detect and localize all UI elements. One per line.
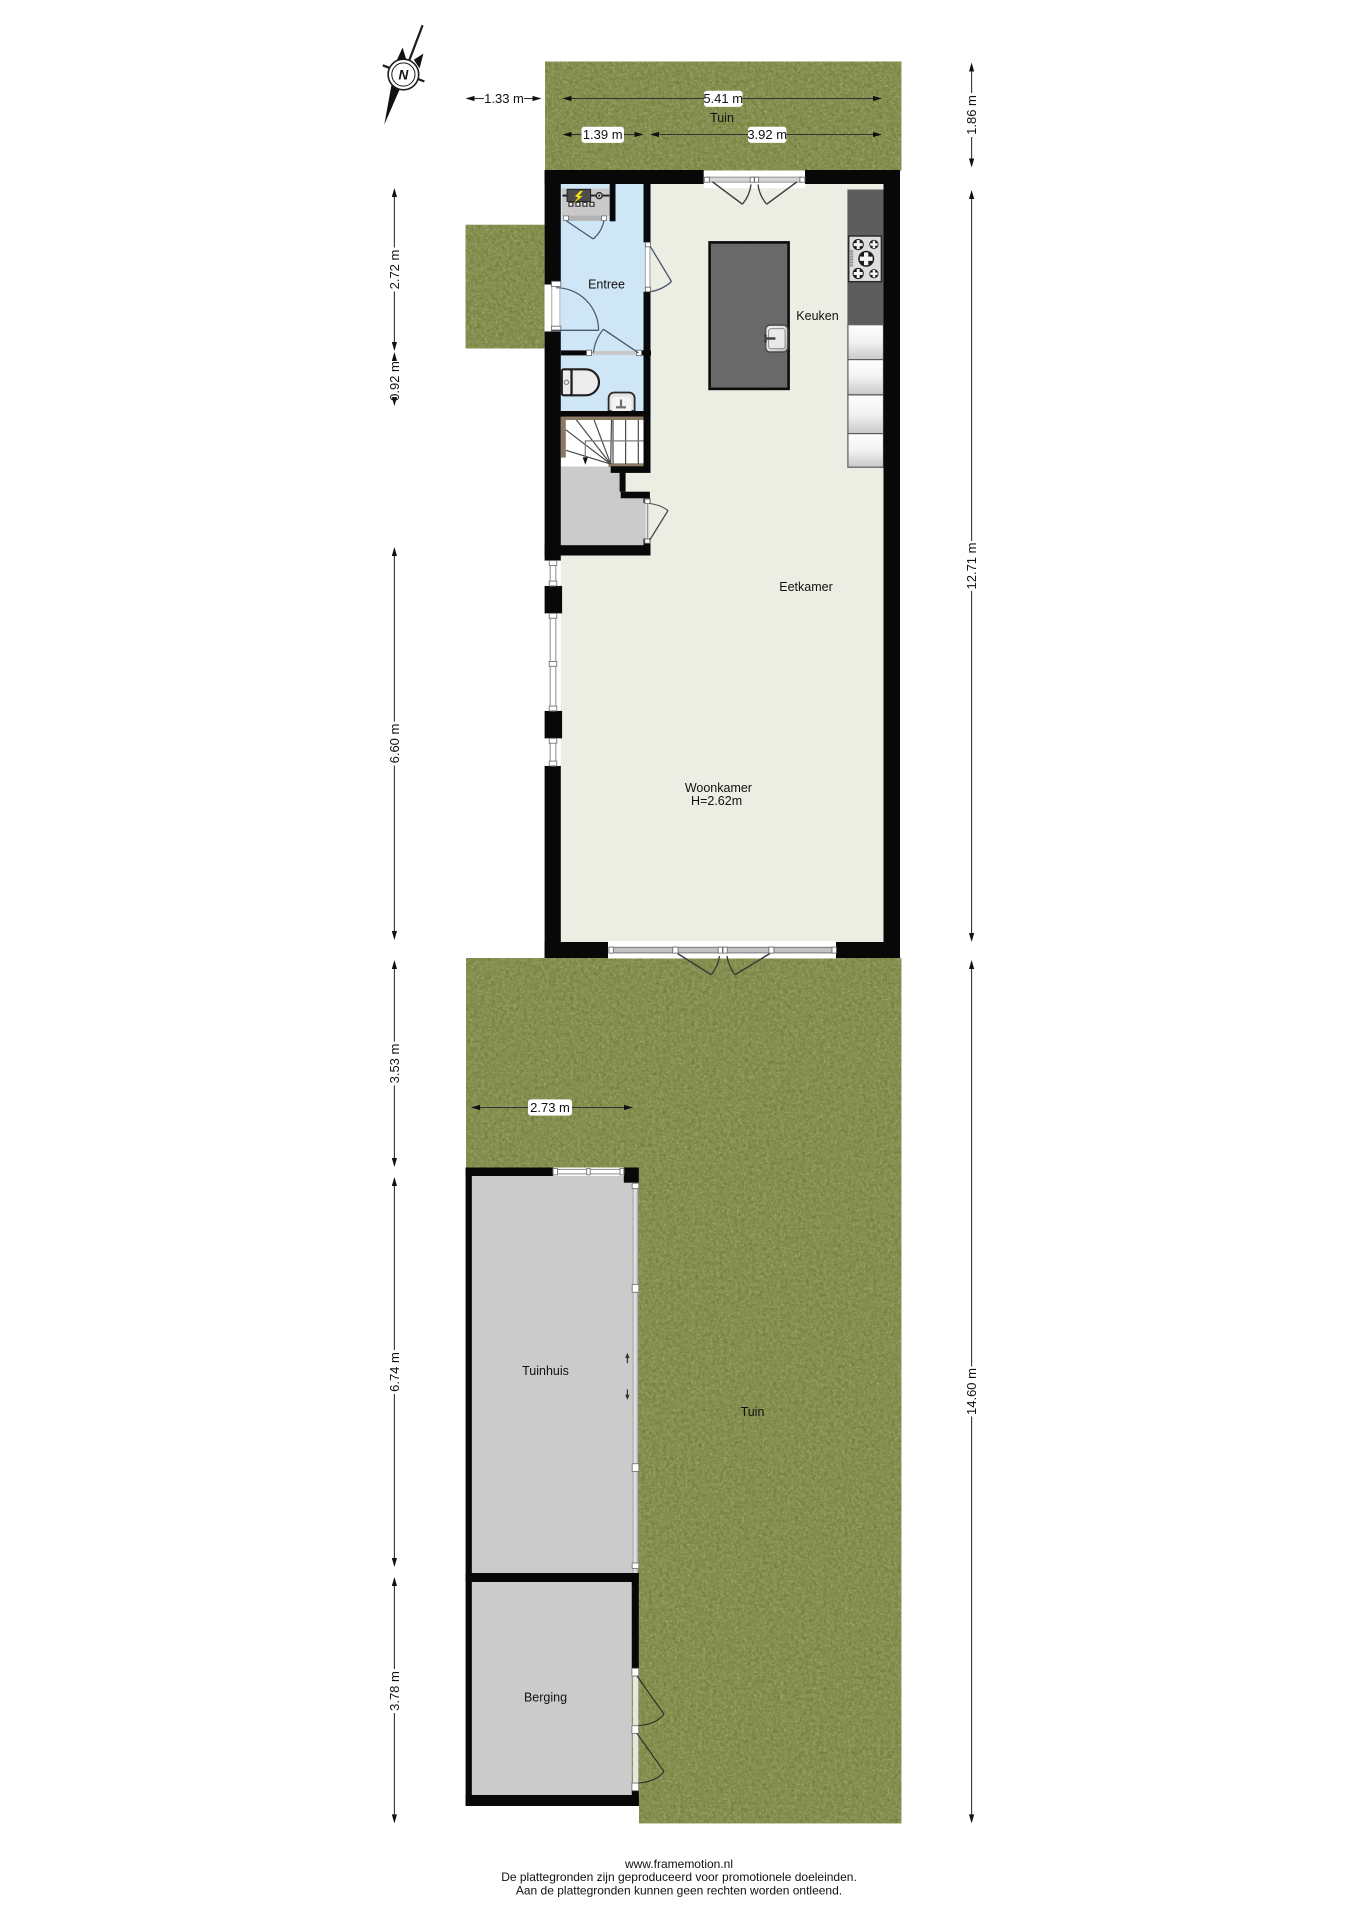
- svg-text:14.60 m: 14.60 m: [964, 1368, 979, 1415]
- svg-text:6.74 m: 6.74 m: [387, 1352, 402, 1392]
- svg-text:Tuinhuis: Tuinhuis: [522, 1364, 569, 1378]
- svg-text:5.41 m: 5.41 m: [703, 91, 743, 106]
- svg-text:3.78 m: 3.78 m: [387, 1671, 402, 1711]
- svg-text:2.73 m: 2.73 m: [530, 1100, 570, 1115]
- svg-text:De plattegronden zijn geproduc: De plattegronden zijn geproduceerd voor …: [501, 1870, 857, 1884]
- svg-text:Entree: Entree: [588, 278, 625, 292]
- svg-text:Tuin: Tuin: [741, 1405, 765, 1419]
- svg-text:Tuin: Tuin: [710, 111, 734, 125]
- svg-text:Eetkamer: Eetkamer: [779, 580, 833, 594]
- svg-text:N: N: [399, 68, 409, 83]
- svg-text:3.92 m: 3.92 m: [747, 127, 787, 142]
- svg-text:Keuken: Keuken: [796, 309, 838, 323]
- svg-text:Aan de plattegronden kunnen ge: Aan de plattegronden kunnen geen rechten…: [516, 1883, 842, 1897]
- svg-text:6.60 m: 6.60 m: [387, 724, 402, 764]
- svg-text:Berging: Berging: [524, 1691, 567, 1705]
- svg-text:1.39 m: 1.39 m: [583, 127, 623, 142]
- svg-text:12.71 m: 12.71 m: [964, 543, 979, 590]
- svg-text:1.33 m: 1.33 m: [484, 91, 524, 106]
- svg-text:www.framemotion.nl: www.framemotion.nl: [624, 1857, 733, 1871]
- svg-text:1.86 m: 1.86 m: [964, 95, 979, 135]
- svg-text:H=2.62m: H=2.62m: [691, 794, 742, 808]
- svg-text:3.53 m: 3.53 m: [387, 1044, 402, 1084]
- svg-text:0.92 m: 0.92 m: [387, 361, 402, 401]
- svg-text:Woonkamer: Woonkamer: [685, 781, 752, 795]
- svg-text:2.72 m: 2.72 m: [387, 250, 402, 290]
